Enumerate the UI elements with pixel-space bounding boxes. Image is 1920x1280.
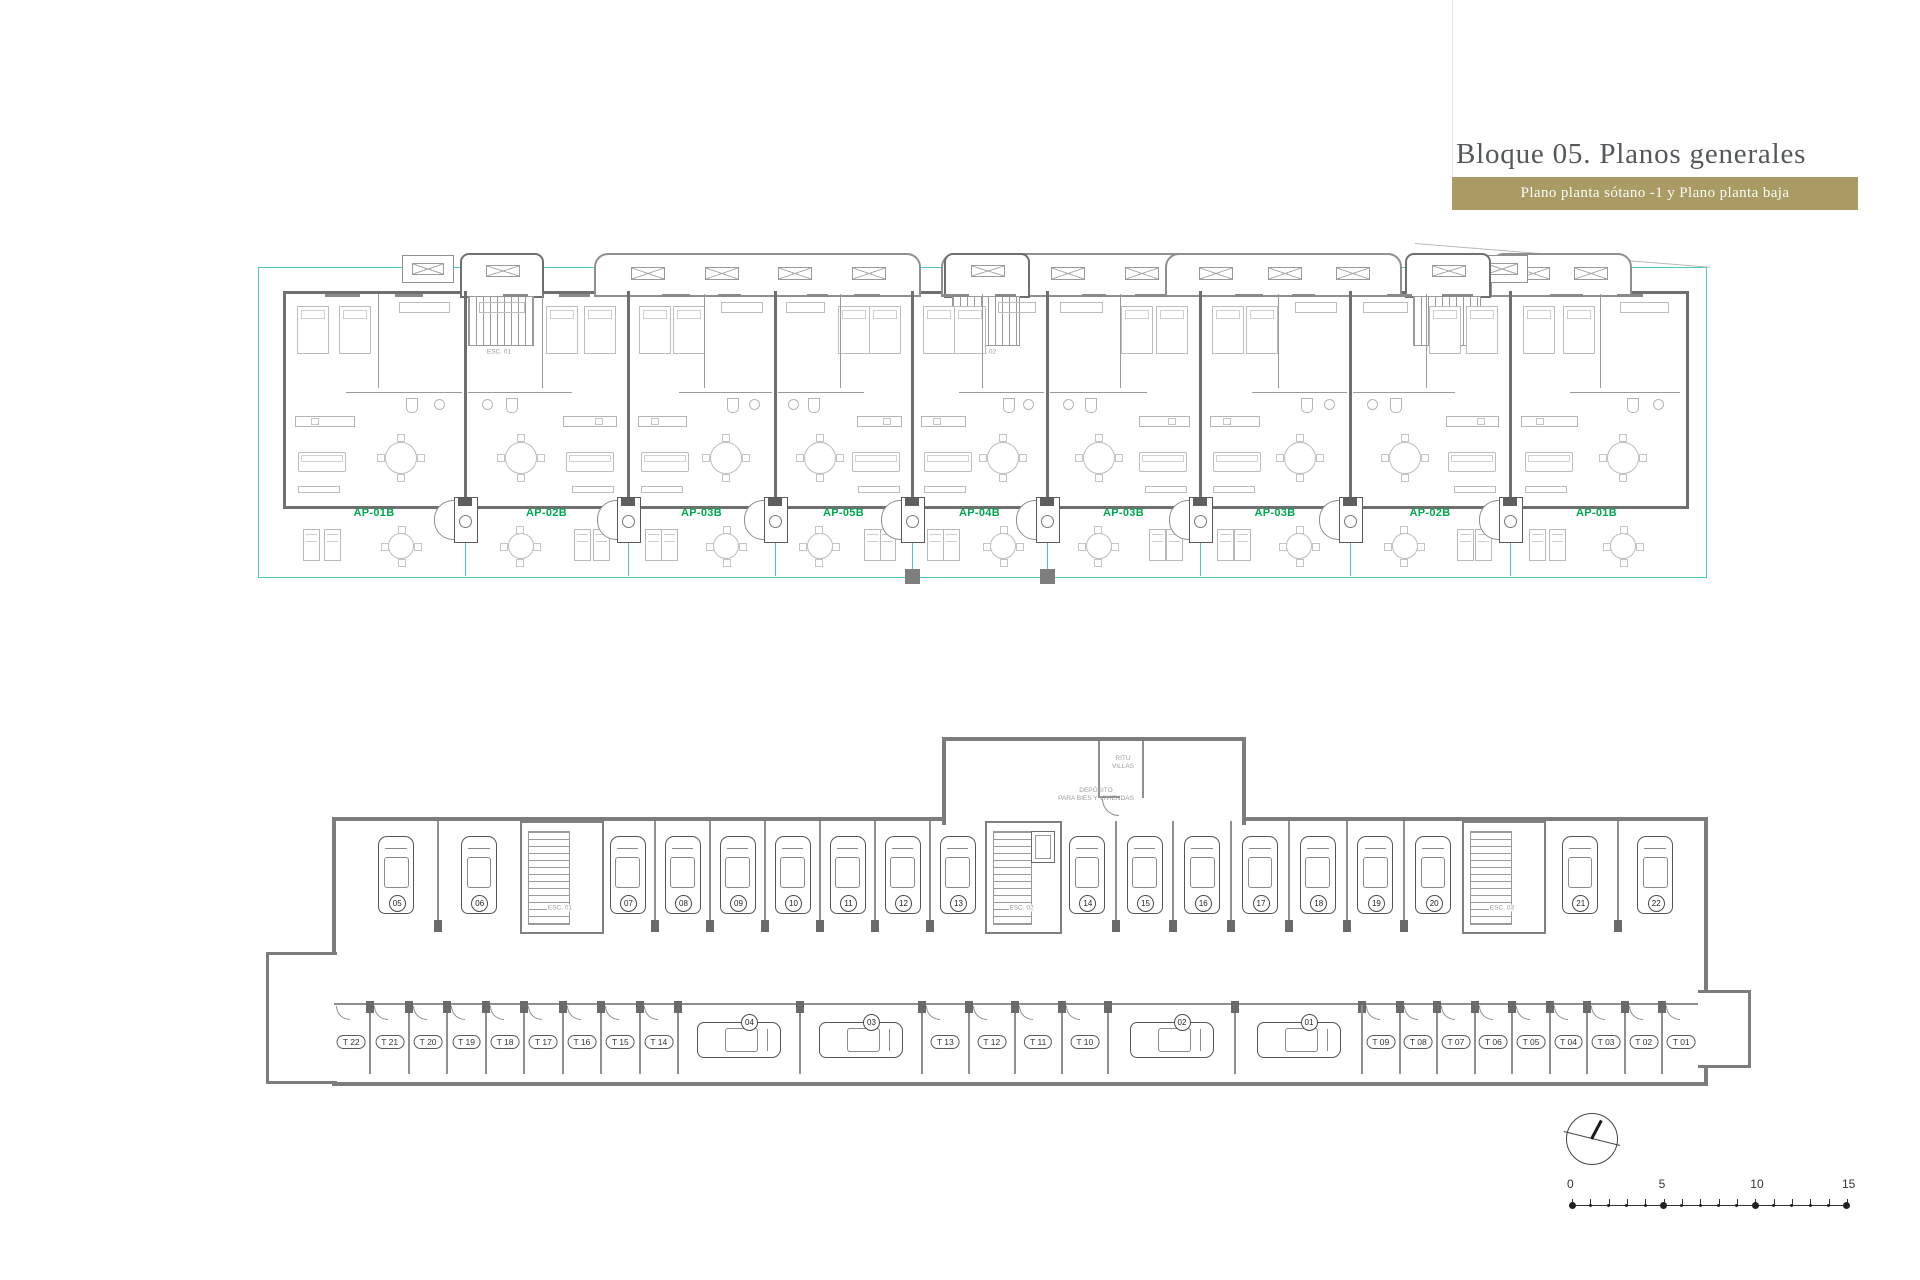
scale-minor-dot	[1644, 1204, 1647, 1207]
column	[1433, 1001, 1441, 1013]
terrace-table-icon	[1392, 533, 1418, 559]
sun-lounger-icon	[1217, 529, 1234, 561]
column	[1471, 1001, 1479, 1013]
window-sill	[1387, 294, 1412, 297]
stall-divider	[874, 821, 876, 930]
storage-divider	[968, 1005, 970, 1074]
stair-core	[520, 821, 604, 934]
dining-table-icon	[987, 442, 1019, 474]
kitchen-sink-icon	[1477, 418, 1485, 425]
chair-icon	[1296, 559, 1304, 567]
kitchen-counter-icon	[1139, 416, 1190, 427]
storage-label: T 15	[606, 1035, 635, 1049]
column	[366, 1001, 374, 1013]
chair-icon	[816, 434, 824, 442]
bed-icon	[869, 306, 901, 354]
car-hood-line	[727, 843, 749, 849]
wardrobe-icon	[721, 302, 762, 313]
car-cabin	[780, 857, 805, 888]
apartment-unit	[468, 294, 625, 500]
sink-icon	[1324, 399, 1335, 410]
tv-unit-icon	[1525, 486, 1567, 493]
sun-lounger-icon	[324, 529, 341, 561]
interior-wall	[378, 294, 379, 388]
interior-wall	[679, 392, 772, 393]
scale-tick	[1810, 1199, 1811, 1205]
chair-icon	[999, 434, 1007, 442]
chair-icon	[1075, 454, 1083, 462]
storage-label: T 11	[1024, 1035, 1052, 1049]
chair-icon	[377, 454, 385, 462]
sink-icon	[1653, 399, 1664, 410]
scale-minor-dot	[1790, 1204, 1793, 1207]
toilet-icon	[727, 398, 739, 413]
car-cabin	[890, 857, 915, 888]
column	[443, 1001, 451, 1013]
car-hood-line	[1644, 843, 1666, 849]
terrace-table-icon	[1286, 533, 1312, 559]
sofa-icon	[1448, 452, 1496, 472]
roof-vent-icon	[1051, 267, 1085, 280]
parking-number-badge: 16	[1195, 895, 1212, 912]
parking-number-badge: 01	[1301, 1014, 1318, 1031]
storage-label: T 09	[1366, 1035, 1395, 1049]
kitchen-sink-icon	[311, 418, 319, 425]
chair-icon	[417, 454, 425, 462]
tv-unit-icon	[858, 486, 900, 493]
parking-number-badge: 05	[389, 895, 406, 912]
toilet-icon	[1085, 398, 1097, 413]
scale-tick-label: 0	[1567, 1177, 1574, 1191]
sun-lounger-icon	[1549, 529, 1566, 561]
car-hood-line	[782, 843, 804, 849]
column	[597, 1001, 605, 1013]
chair-icon	[1316, 454, 1324, 462]
tv-unit-icon	[572, 486, 614, 493]
terrace-table-icon	[388, 533, 414, 559]
wardrobe-icon	[1060, 302, 1103, 313]
bed-icon	[1246, 306, 1278, 354]
parking-number-badge: 22	[1648, 895, 1665, 912]
car-hood-line	[385, 843, 407, 849]
window-sill	[1292, 294, 1315, 297]
tv-unit-icon	[641, 486, 683, 493]
stall-divider	[1288, 821, 1290, 930]
toilet-icon	[1301, 398, 1313, 413]
storage-divider	[562, 1005, 564, 1074]
window-sill	[1235, 294, 1264, 297]
storage-label: T 19	[452, 1035, 481, 1049]
column	[1396, 1001, 1404, 1013]
sink-icon	[482, 399, 493, 410]
dining-table-icon	[385, 442, 417, 474]
storage-divider	[1549, 1005, 1551, 1074]
stair-tower	[944, 253, 1030, 298]
chair-icon	[836, 454, 844, 462]
parking-number-badge: 17	[1253, 895, 1270, 912]
car-cabin	[1075, 857, 1100, 888]
kitchen-counter-icon	[295, 416, 355, 427]
car-hood-line	[1569, 843, 1591, 849]
storage-label: T 04	[1554, 1035, 1583, 1049]
storage-divider	[1061, 1005, 1063, 1074]
storage-divider	[1511, 1005, 1513, 1074]
boundary-pillar	[1040, 569, 1055, 584]
chair-icon	[815, 559, 823, 567]
stair-tower	[1405, 253, 1491, 298]
toilet-icon	[506, 398, 518, 413]
sofa-icon	[641, 452, 689, 472]
apartment-label: AP-03B	[1103, 507, 1144, 519]
car-hood-line	[1307, 843, 1329, 849]
stall-divider	[1234, 1005, 1236, 1074]
scale-minor-dot	[1827, 1204, 1830, 1207]
chair-icon	[1115, 454, 1123, 462]
scale-tick	[1590, 1199, 1591, 1205]
apartment-unit	[1050, 294, 1197, 500]
party-wall	[1349, 291, 1352, 503]
car-cabin	[1248, 857, 1273, 888]
roof-vent-icon	[631, 267, 665, 280]
party-wall	[1509, 291, 1512, 503]
storage-label: T 02	[1629, 1035, 1658, 1049]
stall-divider	[1172, 821, 1174, 930]
column	[918, 1001, 926, 1013]
tv-unit-icon	[1213, 486, 1255, 493]
column	[1508, 1001, 1516, 1013]
storage-label: T 03	[1592, 1035, 1621, 1049]
storage-label: T 12	[977, 1035, 1006, 1049]
chair-icon	[1276, 454, 1284, 462]
dining-table-icon	[1607, 442, 1639, 474]
storage-label: T 08	[1404, 1035, 1433, 1049]
column	[1231, 1001, 1239, 1013]
car-cabin	[835, 857, 860, 888]
column	[1343, 920, 1351, 932]
sink-icon	[434, 399, 445, 410]
stair-label: ESC. 03	[1489, 905, 1515, 912]
window-sill	[1135, 294, 1164, 297]
parking-number-badge: 07	[620, 895, 637, 912]
column	[1285, 920, 1293, 932]
column	[405, 1001, 413, 1013]
window-sill	[1550, 294, 1583, 297]
roof-vent-icon	[1432, 265, 1466, 277]
chair-icon	[1384, 543, 1392, 551]
window-sill	[1617, 294, 1644, 297]
column	[1546, 1001, 1554, 1013]
car-hood-line	[889, 1029, 896, 1051]
storage-label: T 10	[1070, 1035, 1099, 1049]
terrace-table-icon	[1610, 533, 1636, 559]
kitchen-counter-icon	[1447, 416, 1500, 427]
scale-minor-dot	[1809, 1204, 1812, 1207]
apartment-unit	[286, 294, 462, 500]
chair-icon	[722, 434, 730, 442]
storage-divider	[446, 1005, 448, 1074]
toilet-icon	[1390, 398, 1402, 413]
chair-icon	[979, 454, 987, 462]
apartment-label: AP-04B	[959, 507, 1000, 519]
scale-tick	[1792, 1199, 1793, 1205]
car-hood-line	[1134, 843, 1156, 849]
sink-icon	[1063, 399, 1074, 410]
window-sill	[1442, 294, 1473, 297]
bed-icon	[1563, 306, 1595, 354]
stall-divider	[799, 1005, 801, 1074]
floor-plan-sheet: Bloque 05. Planos generales Plano planta…	[0, 0, 1920, 1280]
toilet-icon	[1003, 398, 1015, 413]
toilet-icon	[406, 398, 418, 413]
interior-wall	[704, 294, 705, 388]
window-sill	[943, 294, 969, 297]
car-hood-line	[947, 843, 969, 849]
car-hood-line	[672, 843, 694, 849]
roof-box	[402, 255, 454, 283]
interior-wall	[1353, 392, 1455, 393]
chair-icon	[816, 474, 824, 482]
kitchen-counter-icon	[563, 416, 617, 427]
roof-vent-icon	[778, 267, 812, 280]
car-cabin	[670, 857, 695, 888]
parking-number-badge: 04	[741, 1014, 758, 1031]
storage-divider	[639, 1005, 641, 1074]
column	[1583, 1001, 1591, 1013]
wardrobe-icon	[479, 302, 525, 313]
window-sill	[995, 294, 1016, 297]
ground-floor-plan: ESC. 01ESC. 02ESC. 03AP-01BA.RAP-02BA.RA…	[0, 0, 1920, 640]
chair-icon	[1620, 526, 1628, 534]
bed-icon	[584, 306, 616, 354]
ritu-room-label: RITUVILLAS	[1096, 755, 1150, 771]
chair-icon	[739, 543, 747, 551]
roof-canopy	[594, 253, 921, 297]
stall-divider	[1403, 821, 1405, 930]
bed-icon	[1466, 306, 1498, 354]
parking-number-badge: 08	[675, 895, 692, 912]
sofa-icon	[852, 452, 900, 472]
roof-vent-icon	[705, 267, 739, 280]
scale-tick	[1755, 1199, 1756, 1205]
stall-divider	[654, 821, 656, 930]
chair-icon	[832, 543, 840, 551]
bed-icon	[639, 306, 671, 354]
stair-label: ESC. 01	[547, 905, 573, 912]
scale-tick	[1719, 1199, 1720, 1205]
column	[636, 1001, 644, 1013]
scale-tick	[1700, 1199, 1701, 1205]
chair-icon	[1619, 434, 1627, 442]
column	[1227, 920, 1235, 932]
interior-wall	[959, 392, 1044, 393]
apartment-label: AP-02B	[526, 507, 567, 519]
parking-number-badge: 03	[863, 1014, 880, 1031]
storage-divider	[600, 1005, 602, 1074]
dining-table-icon	[804, 442, 836, 474]
stall-divider	[437, 821, 439, 930]
car-icon	[1257, 1022, 1341, 1058]
column	[674, 1001, 682, 1013]
sofa-icon	[1525, 452, 1573, 472]
chair-icon	[1296, 526, 1304, 534]
chair-icon	[1603, 543, 1611, 551]
chair-icon	[1400, 526, 1408, 534]
interior-wall	[468, 392, 572, 393]
scale-minor-dot	[1699, 1204, 1702, 1207]
bed-icon	[1429, 306, 1461, 354]
chair-icon	[1296, 474, 1304, 482]
chair-icon	[1094, 559, 1102, 567]
storage-divider	[369, 1005, 371, 1074]
sun-lounger-icon	[1149, 529, 1166, 561]
car-cabin	[1568, 857, 1593, 888]
apartment-label: AP-01B	[1576, 507, 1617, 519]
deposit-room-label-line2: PARA BIES Y VIVIENDAS	[1016, 795, 1176, 803]
sink-icon	[788, 399, 799, 410]
chair-icon	[1639, 454, 1647, 462]
window-sill	[395, 294, 423, 297]
kitchen-sink-icon	[595, 418, 603, 425]
storage-divider	[523, 1005, 525, 1074]
car-hood-line	[468, 843, 490, 849]
car-icon	[697, 1022, 781, 1058]
apartment-unit	[631, 294, 772, 500]
chair-icon	[381, 543, 389, 551]
kitchen-counter-icon	[857, 416, 902, 427]
chair-icon	[1019, 454, 1027, 462]
stall-divider	[1361, 1005, 1363, 1074]
apartment-unit	[778, 294, 909, 500]
bed-icon	[673, 306, 705, 354]
chair-icon	[537, 454, 545, 462]
window-sill	[1082, 294, 1106, 297]
chair-icon	[516, 559, 524, 567]
column	[520, 1001, 528, 1013]
scale-bar-line	[1572, 1205, 1847, 1206]
scale-tick	[1737, 1199, 1738, 1205]
column	[926, 920, 934, 932]
chair-icon	[1400, 559, 1408, 567]
car-cabin	[1363, 857, 1388, 888]
car-cabin	[1421, 857, 1446, 888]
kitchen-counter-icon	[638, 416, 687, 427]
stall-divider	[764, 821, 766, 930]
chair-icon	[398, 526, 406, 534]
parking-number-badge: 13	[950, 895, 967, 912]
storage-divider	[485, 1005, 487, 1074]
chair-icon	[722, 474, 730, 482]
wardrobe-icon	[1363, 302, 1408, 313]
party-wall	[1199, 291, 1202, 503]
scale-tick	[1627, 1199, 1628, 1205]
sun-lounger-icon	[645, 529, 662, 561]
storage-divider	[1014, 1005, 1016, 1074]
storage-label: T 18	[491, 1035, 520, 1049]
chair-icon	[1078, 543, 1086, 551]
parking-number-badge: 15	[1137, 895, 1154, 912]
boundary-pillar	[905, 569, 920, 584]
wardrobe-icon	[787, 302, 826, 313]
scale-tick	[1847, 1199, 1848, 1205]
scale-tick	[1682, 1199, 1683, 1205]
interior-wall	[1252, 392, 1347, 393]
car-cabin	[847, 1028, 880, 1053]
chair-icon	[516, 526, 524, 534]
storage-divider	[1436, 1005, 1438, 1074]
ritu-room-label-line2: VILLAS	[1096, 763, 1150, 771]
wardrobe-icon	[1620, 302, 1669, 313]
chair-icon	[999, 474, 1007, 482]
storage-label: T 13	[931, 1035, 960, 1049]
scale-major-dot	[1843, 1202, 1850, 1209]
terrace-table-icon	[807, 533, 833, 559]
chair-icon	[1000, 559, 1008, 567]
stair-core	[985, 821, 1062, 934]
bed-icon	[339, 306, 371, 354]
column	[1614, 920, 1622, 932]
storage-divider	[1586, 1005, 1588, 1074]
parking-number-badge: 10	[785, 895, 802, 912]
column	[1112, 920, 1120, 932]
apartment-label: AP-05B	[823, 507, 864, 519]
car-hood-line	[1191, 843, 1213, 849]
chair-icon	[500, 543, 508, 551]
scale-major-dot	[1660, 1202, 1667, 1209]
storage-divider	[921, 1005, 923, 1074]
stall-divider	[1230, 821, 1232, 930]
chair-icon	[1095, 474, 1103, 482]
terrace-table-icon	[713, 533, 739, 559]
storage-label: T 01	[1667, 1035, 1696, 1049]
deposit-room-label-line1: DEPÓSITO	[1016, 787, 1176, 795]
chair-icon	[1417, 543, 1425, 551]
chair-icon	[1279, 543, 1287, 551]
party-wall	[911, 291, 914, 503]
scale-minor-dot	[1625, 1204, 1628, 1207]
roof-vent-icon	[852, 267, 886, 280]
elevator-inner	[1035, 835, 1051, 859]
scale-tick-label: 15	[1842, 1177, 1855, 1191]
chair-icon	[1094, 526, 1102, 534]
chair-icon	[397, 434, 405, 442]
chair-icon	[1401, 434, 1409, 442]
storage-label: T 22	[337, 1035, 366, 1049]
storage-label: T 17	[529, 1035, 558, 1049]
scale-minor-dot	[1589, 1204, 1592, 1207]
chair-icon	[1000, 526, 1008, 534]
sofa-icon	[298, 452, 346, 472]
deposit-block: DEPÓSITOPARA BIES Y VIVIENDASRITUVILLAS	[942, 737, 1246, 825]
window-sill	[503, 294, 528, 297]
chair-icon	[1381, 454, 1389, 462]
column	[1169, 920, 1177, 932]
stall-divider	[709, 821, 711, 930]
interior-wall	[982, 294, 983, 388]
car-cabin	[1158, 1028, 1191, 1053]
kitchen-sink-icon	[933, 418, 941, 425]
chair-icon	[1599, 454, 1607, 462]
interior-wall	[1278, 294, 1279, 388]
apartment-unit	[1203, 294, 1347, 500]
column	[1011, 1001, 1019, 1013]
sun-lounger-icon	[1457, 529, 1474, 561]
bed-icon	[923, 306, 955, 354]
dining-table-icon	[1284, 442, 1316, 474]
chair-icon	[1312, 543, 1320, 551]
car-hood-line	[1076, 843, 1098, 849]
interior-wall	[1600, 294, 1601, 388]
kitchen-sink-icon	[883, 418, 891, 425]
